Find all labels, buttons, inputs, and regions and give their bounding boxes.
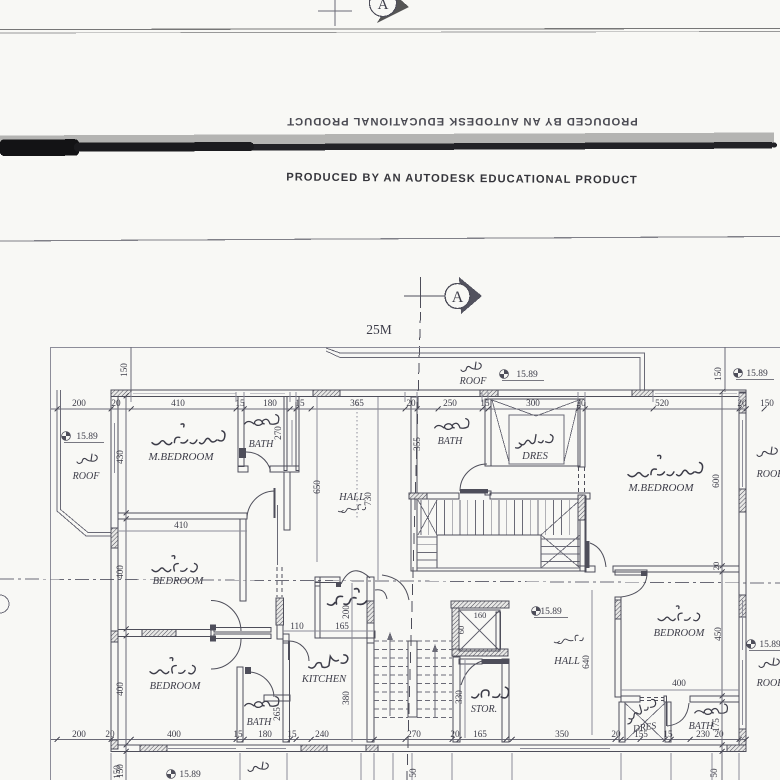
svg-text:155: 155 [634, 729, 648, 739]
svg-text:60: 60 [456, 626, 466, 635]
svg-text:20: 20 [105, 729, 115, 739]
svg-text:230: 230 [696, 729, 710, 739]
svg-text:15: 15 [287, 729, 297, 739]
svg-text:50: 50 [709, 768, 719, 778]
svg-text:265: 265 [272, 707, 282, 721]
svg-text:270: 270 [273, 426, 283, 440]
svg-text:15: 15 [235, 398, 245, 408]
svg-text:HALL: HALL [338, 492, 365, 503]
svg-text:355: 355 [412, 437, 422, 451]
svg-text:A: A [378, 0, 389, 13]
svg-text:BATH: BATH [247, 717, 272, 728]
svg-text:180: 180 [258, 729, 272, 739]
svg-text:15.89: 15.89 [759, 640, 780, 650]
svg-text:175: 175 [711, 718, 721, 732]
svg-text:400: 400 [115, 682, 125, 696]
svg-text:520: 520 [655, 398, 669, 408]
svg-text:730: 730 [363, 492, 373, 506]
svg-text:20: 20 [406, 398, 416, 408]
svg-text:20: 20 [111, 398, 121, 408]
svg-text:150: 150 [119, 363, 129, 377]
svg-text:400: 400 [167, 729, 181, 739]
svg-text:A: A [452, 289, 464, 306]
svg-text:165: 165 [335, 621, 349, 631]
svg-text:330: 330 [454, 690, 464, 704]
svg-text:450: 450 [713, 627, 723, 641]
svg-text:300: 300 [526, 398, 540, 408]
svg-text:20: 20 [711, 562, 721, 571]
svg-text:50: 50 [408, 768, 418, 778]
svg-text:KITCHEN: KITCHEN [301, 674, 347, 685]
svg-text:15.89: 15.89 [179, 770, 201, 780]
svg-text:640: 640 [581, 655, 591, 669]
svg-text:150: 150 [760, 398, 774, 408]
svg-text:200: 200 [72, 398, 86, 408]
svg-text:410: 410 [174, 520, 188, 530]
svg-text:350: 350 [555, 729, 569, 739]
svg-text:200: 200 [341, 605, 351, 619]
svg-text:200: 200 [72, 729, 86, 739]
svg-text:150: 150 [713, 367, 723, 381]
svg-text:400: 400 [672, 678, 686, 688]
svg-text:180: 180 [263, 398, 277, 408]
svg-text:15.89: 15.89 [516, 370, 538, 380]
svg-text:165: 165 [473, 729, 487, 739]
svg-text:380: 380 [341, 691, 351, 705]
svg-text:15.89: 15.89 [540, 607, 562, 617]
svg-text:STOR.: STOR. [471, 704, 497, 715]
svg-text:M.BEDROOM: M.BEDROOM [627, 482, 694, 494]
svg-text:BEDROOM: BEDROOM [150, 681, 202, 692]
svg-text:HALL: HALL [553, 656, 580, 667]
svg-text:410: 410 [171, 398, 185, 408]
svg-text:BATH: BATH [438, 436, 463, 447]
svg-text:400: 400 [115, 565, 125, 579]
svg-text:160: 160 [474, 610, 487, 620]
svg-text:15.89: 15.89 [746, 369, 768, 379]
svg-text:15.89: 15.89 [76, 432, 98, 442]
svg-text:430: 430 [115, 450, 125, 464]
svg-text:20: 20 [450, 729, 460, 739]
svg-text:20: 20 [611, 729, 621, 739]
svg-text:150: 150 [112, 765, 122, 779]
svg-text:15: 15 [663, 729, 673, 739]
svg-text:DRES: DRES [521, 451, 548, 462]
svg-text:M.BEDROOM: M.BEDROOM [147, 451, 214, 463]
svg-text:BEDROOM: BEDROOM [153, 576, 205, 587]
svg-text:600: 600 [711, 474, 721, 488]
svg-text:365: 365 [350, 398, 364, 408]
svg-text:BEDROOM: BEDROOM [654, 628, 706, 639]
svg-text:ROOF: ROOF [459, 376, 488, 387]
svg-text:BATH: BATH [249, 439, 274, 450]
svg-text:650: 650 [312, 480, 322, 494]
svg-text:250: 250 [443, 398, 457, 408]
svg-text:25M: 25M [366, 322, 392, 337]
svg-text:ROOF: ROOF [72, 471, 101, 482]
svg-text:15: 15 [295, 398, 305, 408]
svg-text:15: 15 [233, 729, 243, 739]
svg-text:PRODUCED BY AN AUTODESK EDUCAT: PRODUCED BY AN AUTODESK EDUCATIONAL PROD… [286, 115, 638, 127]
svg-text:240: 240 [315, 729, 329, 739]
svg-text:110: 110 [290, 621, 304, 631]
svg-text:ROOF: ROOF [756, 469, 780, 480]
svg-text:270: 270 [407, 729, 421, 739]
svg-text:ROOF: ROOF [756, 678, 780, 689]
